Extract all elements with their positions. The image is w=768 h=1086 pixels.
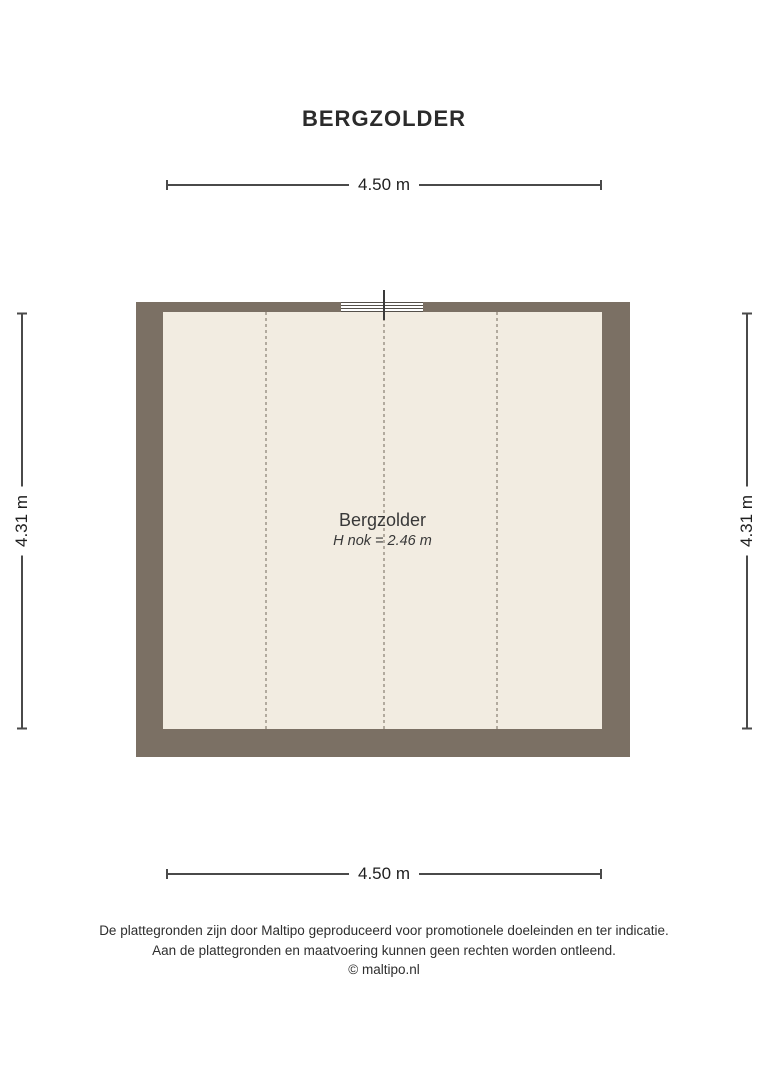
dimension-top: 4.50 m	[166, 176, 602, 194]
dimension-tick	[742, 313, 752, 315]
dimension-label-right: 4.31 m	[737, 486, 757, 556]
window-pane-line	[341, 308, 423, 309]
room-name: Bergzolder	[163, 510, 602, 530]
copyright-line: © maltipo.nl	[0, 960, 768, 980]
dimension-tick	[742, 728, 752, 730]
dimension-label-top: 4.50 m	[349, 175, 419, 195]
dimension-bottom: 4.50 m	[166, 865, 602, 883]
disclaimer-line-2: Aan de plattegronden en maatvoering kunn…	[0, 941, 768, 961]
dimension-tick	[17, 313, 27, 315]
page-title: BERGZOLDER	[0, 106, 768, 132]
dimension-tick	[17, 728, 27, 730]
ridge-marker-line	[383, 290, 385, 320]
dimension-label-left: 4.31 m	[12, 486, 32, 556]
dimension-tick	[600, 180, 602, 190]
floorplan-page: BERGZOLDER 4.50 m 4.31 m 4.31 m Bergzold…	[0, 0, 768, 1086]
disclaimer: De plattegronden zijn door Maltipo gepro…	[0, 921, 768, 980]
dimension-label-bottom: 4.50 m	[349, 864, 419, 884]
dimension-tick	[600, 869, 602, 879]
dimension-tick	[166, 180, 168, 190]
room-label: Bergzolder H nok = 2.46 m	[163, 510, 602, 550]
room-height-note: H nok = 2.46 m	[163, 532, 602, 550]
window-pane-line	[341, 311, 423, 312]
dimension-left: 4.31 m	[13, 313, 31, 730]
dimension-tick	[166, 869, 168, 879]
dimension-right: 4.31 m	[738, 313, 756, 730]
window-pane-line	[341, 302, 423, 303]
window-symbol	[341, 302, 423, 312]
disclaimer-line-1: De plattegronden zijn door Maltipo gepro…	[0, 921, 768, 941]
window-pane-line	[341, 305, 423, 306]
